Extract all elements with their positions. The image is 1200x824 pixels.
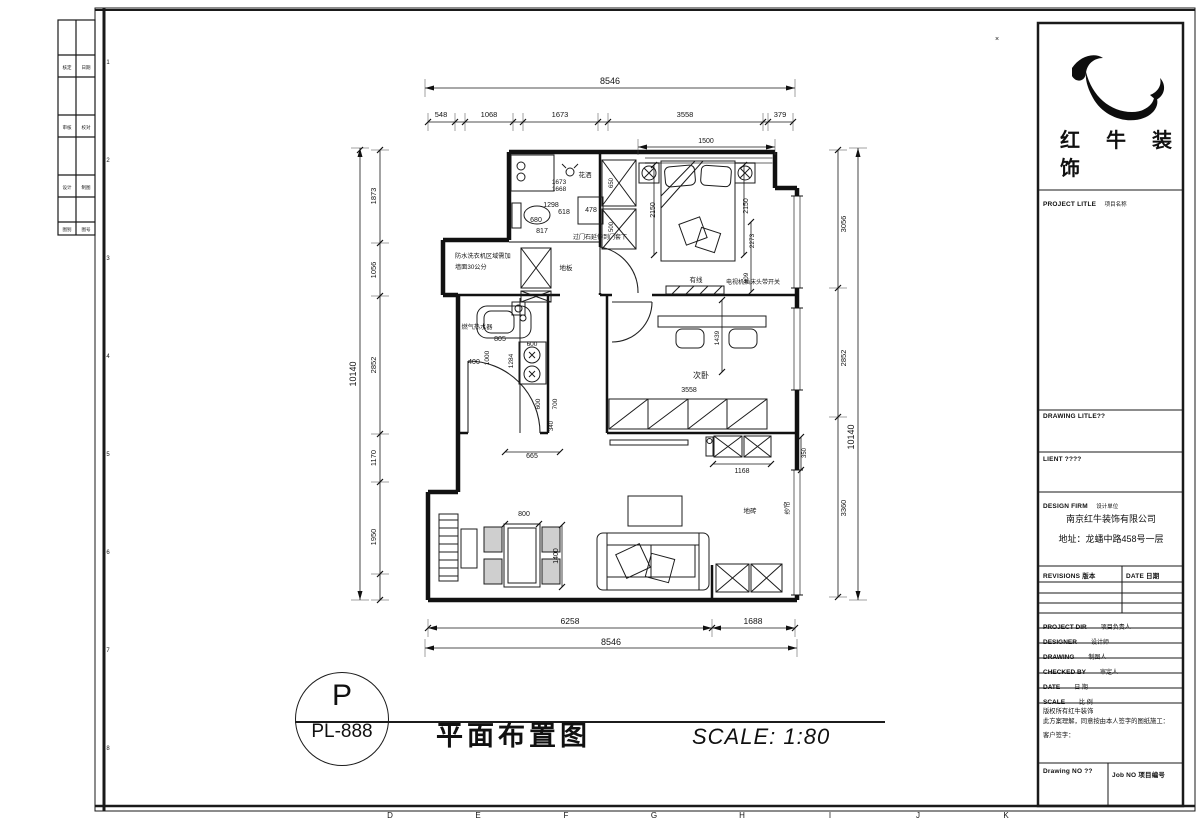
job-no-label: Job NO 项目编号 [1112, 769, 1165, 779]
brand-bull-logo [1072, 55, 1164, 120]
plan-annotation: 1170 [369, 450, 378, 466]
plan-annotation: 650 [609, 177, 615, 188]
dimension-lines [360, 88, 858, 648]
plan-annotation: 800 [518, 511, 530, 518]
drawing-no-label: Drawing NO ?? [1043, 768, 1093, 775]
grid-letter: D [387, 811, 393, 820]
copyright-line2: 此方案理解，同意按由本人签字的图纸施工： [1043, 716, 1169, 725]
grid-row-number: 1 [106, 60, 110, 66]
plan-annotation: 6258 [561, 616, 580, 626]
plan-annotation: 3056 [839, 216, 848, 233]
toilet-tank [512, 203, 521, 228]
plan-annotation: 400 [468, 359, 480, 366]
shower-head [566, 168, 574, 176]
design-firm-label: DESIGN FIRM [1043, 503, 1088, 510]
plan-annotation: 3558 [677, 110, 694, 119]
project-title-label-zh: 项目名称 [1105, 202, 1127, 208]
margin-strip-label: 图别 [63, 226, 72, 233]
plan-annotation: 2150 [743, 198, 750, 214]
bookshelf-cabinet [439, 514, 458, 581]
brand-name-line2: 饰 [1060, 152, 1080, 181]
bath-counter [511, 155, 554, 191]
plan-annotation: 680 [530, 217, 542, 224]
margin-strip-label: 核定 [63, 64, 72, 71]
plan-annotation: 1298 [543, 202, 559, 209]
plan-annotation: 1673 [552, 110, 569, 119]
window-seat-cabinet [706, 436, 771, 457]
date-column-header: DATE 日期 [1126, 570, 1159, 580]
margin-strip-label: 制图 [82, 184, 91, 191]
grid-row-number: 6 [106, 550, 110, 556]
scale-note: SCALE: 1:80 [692, 724, 830, 750]
plan-annotation: 有线 [690, 275, 704, 284]
plan-annotation: 电视机插床头带开关 [726, 278, 780, 286]
plan-annotation: 纱帘 [782, 501, 791, 515]
project-title-label: PROJECT LITLE [1043, 201, 1096, 208]
customer-signature-label: 客户签字： [1043, 730, 1074, 739]
wardrobe [609, 399, 767, 429]
tv-unit [461, 529, 477, 568]
plan-annotation: 3360 [839, 500, 848, 517]
plan-annotation: 防水洗衣机区域需加 [455, 252, 511, 260]
grid-letter: H [739, 811, 745, 820]
desk-chair [729, 329, 757, 348]
plan-annotation: 2852 [839, 350, 848, 367]
bed [661, 161, 735, 261]
tv-console [666, 286, 724, 294]
company-address: 地址：龙蟠中路458号一层 [1040, 532, 1182, 545]
plan-annotation: 次卧 [693, 370, 709, 380]
nightstand-left [639, 163, 659, 183]
plan-annotation: 2150 [650, 202, 657, 218]
plan-annotation: 1950 [369, 529, 378, 546]
furniture [439, 155, 782, 592]
plan-annotation: 1500 [698, 138, 714, 145]
plan-annotation: 1000 [484, 350, 491, 365]
desk-chair [676, 329, 704, 348]
curtain-pelmet [610, 440, 688, 445]
company-name: 南京红牛装饰有限公司 [1040, 512, 1182, 525]
sofa [597, 533, 709, 590]
plan-annotation: 340 [549, 420, 555, 431]
margin-strip-label: 设计 [63, 184, 72, 191]
plan-annotation: 1068 [481, 110, 498, 119]
plan-annotation: 350 [802, 447, 808, 458]
plan-annotation: 500 [609, 221, 615, 232]
grid-row-number: 3 [106, 256, 110, 262]
drawing-title-label: DRAWING LITLE?? [1043, 413, 1105, 420]
sheet-id-bubble: P PL-888 [295, 672, 389, 766]
plan-annotation: × [995, 36, 999, 43]
revisions-header: REVISIONS 版本 [1043, 570, 1096, 580]
plan-annotation: 8546 [600, 76, 620, 86]
grid-row-number: 8 [106, 746, 110, 752]
plan-annotation: 665 [526, 453, 538, 460]
drawing-title: 平面布置图 [436, 714, 591, 753]
margin-strip-label: 校对 [82, 124, 91, 131]
grid-letter: F [564, 811, 569, 820]
brand-name-line1: 红牛装 [1060, 124, 1198, 153]
plan-annotation: 过门石延伸到门套下 [573, 233, 627, 241]
client-label: LIENT ???? [1043, 456, 1081, 463]
margin-strip-label: 审核 [63, 124, 72, 131]
plan-annotation: 地砖 [744, 506, 758, 515]
plan-annotation: 1056 [369, 262, 378, 279]
grid-letter: J [916, 811, 920, 820]
sheet-frame [95, 8, 1195, 811]
floorplan-canvas: 8546548106816733558379150010140187310562… [0, 0, 1200, 824]
grid-row-number: 5 [106, 452, 110, 458]
plan-annotation: 2273 [749, 233, 756, 248]
plan-annotation: 1168 [734, 468, 749, 475]
plan-annotation: 600 [527, 341, 538, 348]
plan-annotation: 8546 [601, 637, 621, 647]
plan-annotation: 805 [494, 336, 506, 343]
coffee-table [628, 496, 682, 526]
stove [519, 342, 546, 384]
plan-annotation: 1688 [744, 616, 763, 626]
plan-annotation: 1284 [508, 353, 515, 368]
corner-cabinet [716, 564, 782, 592]
desk [658, 316, 766, 327]
plan-annotation: 817 [536, 228, 548, 235]
grid-row-number: 2 [106, 158, 110, 164]
plan-annotation: 1673 [552, 179, 567, 186]
plan-annotation: 2852 [369, 357, 378, 374]
plan-annotation: 花洒 [579, 170, 593, 179]
windows [645, 158, 803, 595]
dining-set [484, 524, 560, 587]
plan-annotation: 墙面30公分 [455, 263, 487, 271]
gas-water-heater [477, 302, 531, 338]
plan-annotation: 1439 [714, 330, 721, 345]
plan-annotation: 燃气热水器 [462, 323, 494, 331]
margin-strip-label: 图号 [82, 227, 91, 233]
plan-annotation: 478 [585, 207, 597, 214]
grid-letter: E [475, 811, 480, 820]
plan-annotation: 700 [552, 398, 559, 409]
plan-annotation: 3558 [681, 387, 697, 394]
nightstand-right [735, 163, 755, 183]
copyright-line1: 版权所有红牛装饰 [1043, 706, 1093, 715]
design-firm-label-zh: 设计单位 [1096, 504, 1118, 510]
plan-annotation: 1873 [369, 188, 378, 205]
margin-strip-label: 日期 [82, 65, 91, 71]
grid-letter: G [651, 811, 657, 820]
plan-annotation: 1668 [552, 186, 567, 193]
plan-annotation: 1400 [553, 548, 560, 564]
plan-annotation: 618 [558, 209, 570, 216]
drawing-sheet: { "sheet": { "grid_letters": [[390,818,"… [0, 0, 1200, 824]
grid-row-number: 7 [106, 648, 110, 654]
plan-annotation: 10140 [846, 424, 856, 449]
grid-letter: I [829, 811, 831, 820]
plan-annotation: 10140 [348, 361, 358, 386]
plan-annotation: 600 [535, 398, 542, 409]
plan-annotation: 548 [435, 110, 448, 119]
sheet-id-number: PL-888 [296, 721, 388, 743]
grid-letter: K [1003, 811, 1009, 820]
plan-annotation: 379 [774, 110, 787, 119]
sheet-id-letter: P [296, 679, 388, 713]
plan-annotation: 地板 [560, 263, 574, 272]
grid-row-number: 4 [106, 354, 110, 360]
